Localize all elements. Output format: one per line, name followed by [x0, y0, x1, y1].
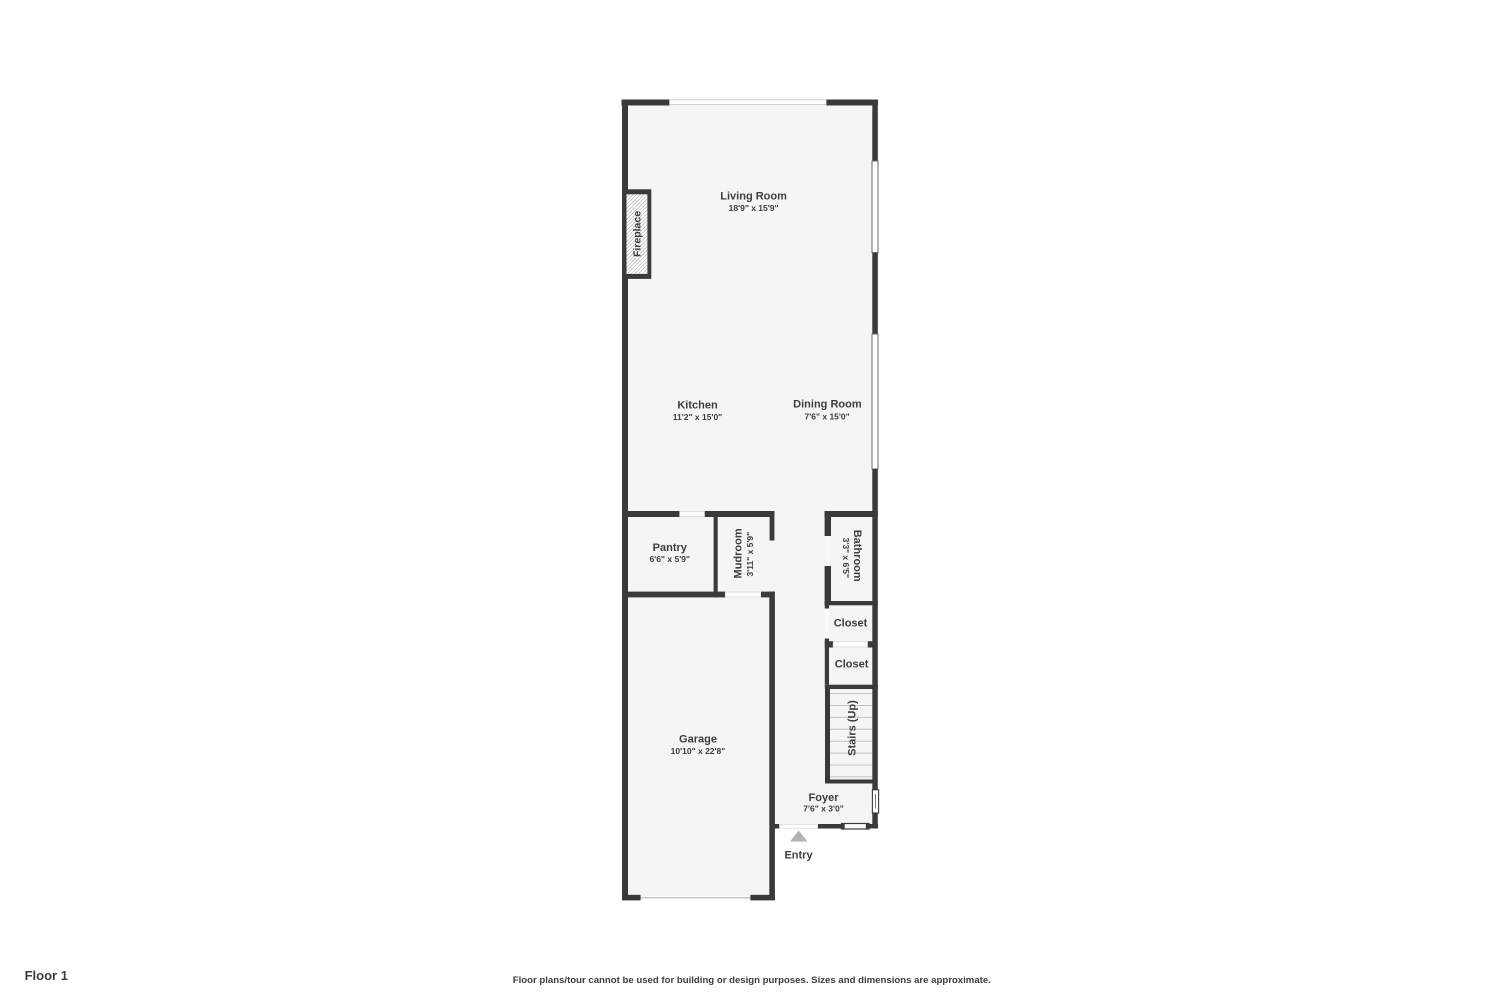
- svg-text:Entry: Entry: [784, 849, 813, 861]
- svg-text:7'6" x 15'0": 7'6" x 15'0": [804, 412, 849, 422]
- svg-text:Garage: Garage: [679, 734, 717, 746]
- svg-text:Kitchen: Kitchen: [677, 400, 718, 412]
- svg-text:Floor 1: Floor 1: [25, 968, 68, 983]
- svg-text:Stairs (Up): Stairs (Up): [846, 700, 858, 756]
- svg-text:10'10" x 22'8": 10'10" x 22'8": [671, 746, 726, 756]
- svg-text:3'11" x 5'9": 3'11" x 5'9": [745, 532, 755, 577]
- svg-text:11'2" x 15'0": 11'2" x 15'0": [673, 412, 722, 422]
- svg-text:Foyer: Foyer: [809, 792, 840, 804]
- svg-text:Floor plans/tour cannot be use: Floor plans/tour cannot be used for buil…: [513, 975, 991, 986]
- svg-text:Mudroom: Mudroom: [733, 528, 745, 578]
- svg-text:6'6" x 5'9": 6'6" x 5'9": [650, 554, 690, 564]
- svg-text:18'9" x 15'9": 18'9" x 15'9": [729, 203, 779, 213]
- svg-text:Bathroom: Bathroom: [851, 530, 863, 582]
- svg-text:Closet: Closet: [835, 659, 869, 671]
- svg-text:3'3" x 6'5": 3'3" x 6'5": [841, 538, 851, 578]
- svg-text:Pantry: Pantry: [653, 542, 688, 554]
- svg-text:Living Room: Living Room: [720, 191, 787, 203]
- svg-text:Dining Room: Dining Room: [793, 399, 862, 411]
- svg-text:Fireplace: Fireplace: [632, 211, 644, 257]
- svg-text:Closet: Closet: [834, 617, 868, 629]
- svg-text:7'6" x 3'0": 7'6" x 3'0": [803, 804, 843, 814]
